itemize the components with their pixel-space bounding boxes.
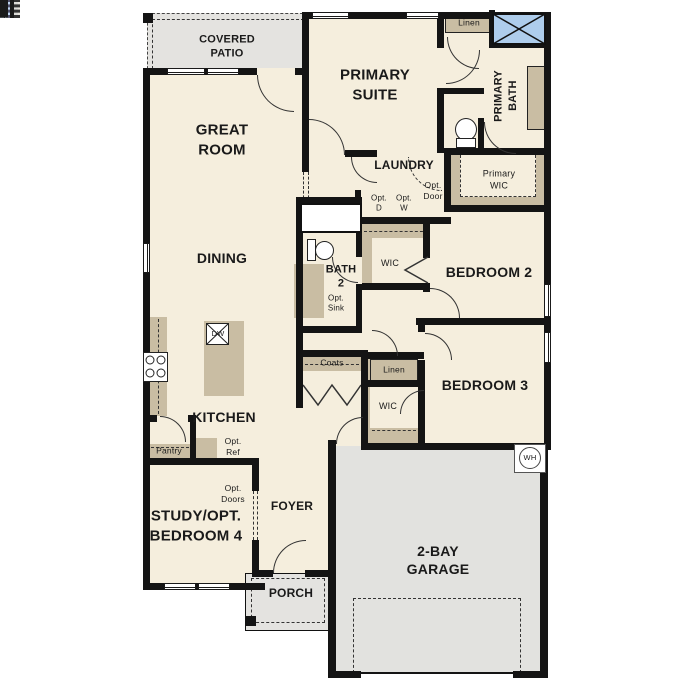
wall — [331, 443, 336, 450]
tub-surround — [300, 203, 362, 233]
wall — [544, 12, 551, 450]
room-label-primary-suite: PRIMARY SUITE — [340, 66, 410, 105]
patio-dashed-line — [152, 19, 153, 69]
room-label-primary-bath: PRIMARY BATH — [492, 70, 521, 122]
wall — [328, 440, 336, 678]
opt-door-label: Opt. Door — [423, 180, 442, 202]
wall — [444, 88, 484, 94]
coats-bifold-door — [303, 383, 361, 407]
patio-post — [143, 13, 153, 23]
wall — [361, 380, 424, 387]
wall — [423, 224, 430, 258]
wall — [296, 350, 368, 357]
room-label-bedroom3: BEDROOM 3 — [442, 376, 529, 394]
wall — [416, 318, 551, 325]
wall — [302, 75, 309, 172]
wall — [444, 148, 551, 155]
closet-label-linen-hall: Linen — [383, 364, 405, 375]
toilet-tank — [456, 138, 476, 148]
window — [198, 583, 230, 590]
room-label-laundry: LAUNDRY — [374, 158, 434, 174]
wic3-dashed-line — [372, 430, 416, 431]
wall — [362, 283, 430, 290]
room-label-bedroom2: BEDROOM 2 — [446, 263, 533, 281]
window — [207, 68, 239, 75]
closet-label-pantry: Pantry — [156, 445, 182, 456]
window — [164, 583, 196, 590]
opt-dryer-label: Opt. D — [371, 194, 387, 215]
window — [312, 12, 349, 19]
wall — [143, 415, 157, 422]
window — [143, 243, 150, 273]
dishwasher-label: DW — [212, 329, 225, 339]
closet-label-wic-bed2: WIC — [381, 258, 399, 270]
wall — [540, 445, 548, 678]
wall — [252, 540, 259, 577]
opt-sink-icon — [8, 0, 10, 18]
wall — [345, 150, 377, 157]
toilet-icon — [315, 241, 334, 260]
wall — [296, 326, 362, 333]
opt-ref-label: Opt. Ref — [225, 436, 242, 458]
window — [544, 284, 551, 317]
room-label-study: STUDY/OPT. BEDROOM 4 — [150, 507, 243, 546]
window — [544, 332, 551, 363]
room-label-dining: DINING — [197, 249, 247, 267]
room-label-bath2: BATH 2 — [326, 263, 357, 292]
patio-dashed-line — [152, 19, 304, 20]
wall — [296, 333, 303, 408]
opt-sink-label: Opt. Sink — [328, 294, 344, 315]
room-label-garage: 2-BAY GARAGE — [407, 542, 470, 578]
porch-post — [246, 616, 256, 626]
wall — [355, 217, 451, 224]
opt-doors-label: Opt. Doors — [221, 483, 245, 505]
closet-label-linen-bath: Linen — [458, 17, 480, 28]
wic2-dashed-line — [364, 231, 428, 232]
window — [406, 12, 439, 19]
wall — [331, 671, 361, 678]
closet-label-coats: Coats — [320, 357, 343, 368]
room-label-kitchen: KITCHEN — [192, 408, 256, 426]
opt-doors-dashed — [253, 491, 254, 540]
wall — [363, 443, 423, 450]
floor-plan: COVERED PATIO GREAT ROOM PRIMARY SUITE D… — [0, 0, 687, 687]
wall — [437, 88, 444, 153]
water-heater-label: WH — [524, 453, 537, 463]
room-label-primary-wic: Primary WIC — [483, 168, 515, 191]
wall — [302, 12, 309, 75]
wall — [418, 325, 425, 332]
opt-doors-dashed — [257, 491, 258, 540]
wall — [423, 284, 430, 292]
wall — [252, 458, 259, 491]
wall — [143, 458, 259, 465]
garage-door-line — [358, 672, 516, 674]
wall — [444, 148, 451, 212]
door-opening — [257, 68, 295, 75]
opt-ref-box — [18, 0, 20, 18]
room-label-great-room: GREAT ROOM — [196, 121, 248, 160]
window — [167, 68, 205, 75]
opt-washer-label: Opt. W — [396, 194, 412, 215]
wall — [305, 570, 334, 577]
wall — [513, 671, 548, 678]
wic2-bifold-door — [402, 256, 430, 284]
closet-label-wic-bed3: WIC — [379, 401, 397, 413]
counter-by-pantry — [196, 438, 217, 459]
room-label-porch: PORCH — [269, 586, 313, 602]
wic2-shelf-side — [362, 238, 372, 283]
room-label-foyer: FOYER — [271, 499, 313, 515]
stove-icon — [143, 352, 168, 382]
wall — [444, 205, 551, 212]
room-label-covered-patio: COVERED PATIO — [199, 33, 255, 62]
garage-apron-dashed — [353, 598, 521, 673]
shower-icon — [492, 13, 546, 45]
